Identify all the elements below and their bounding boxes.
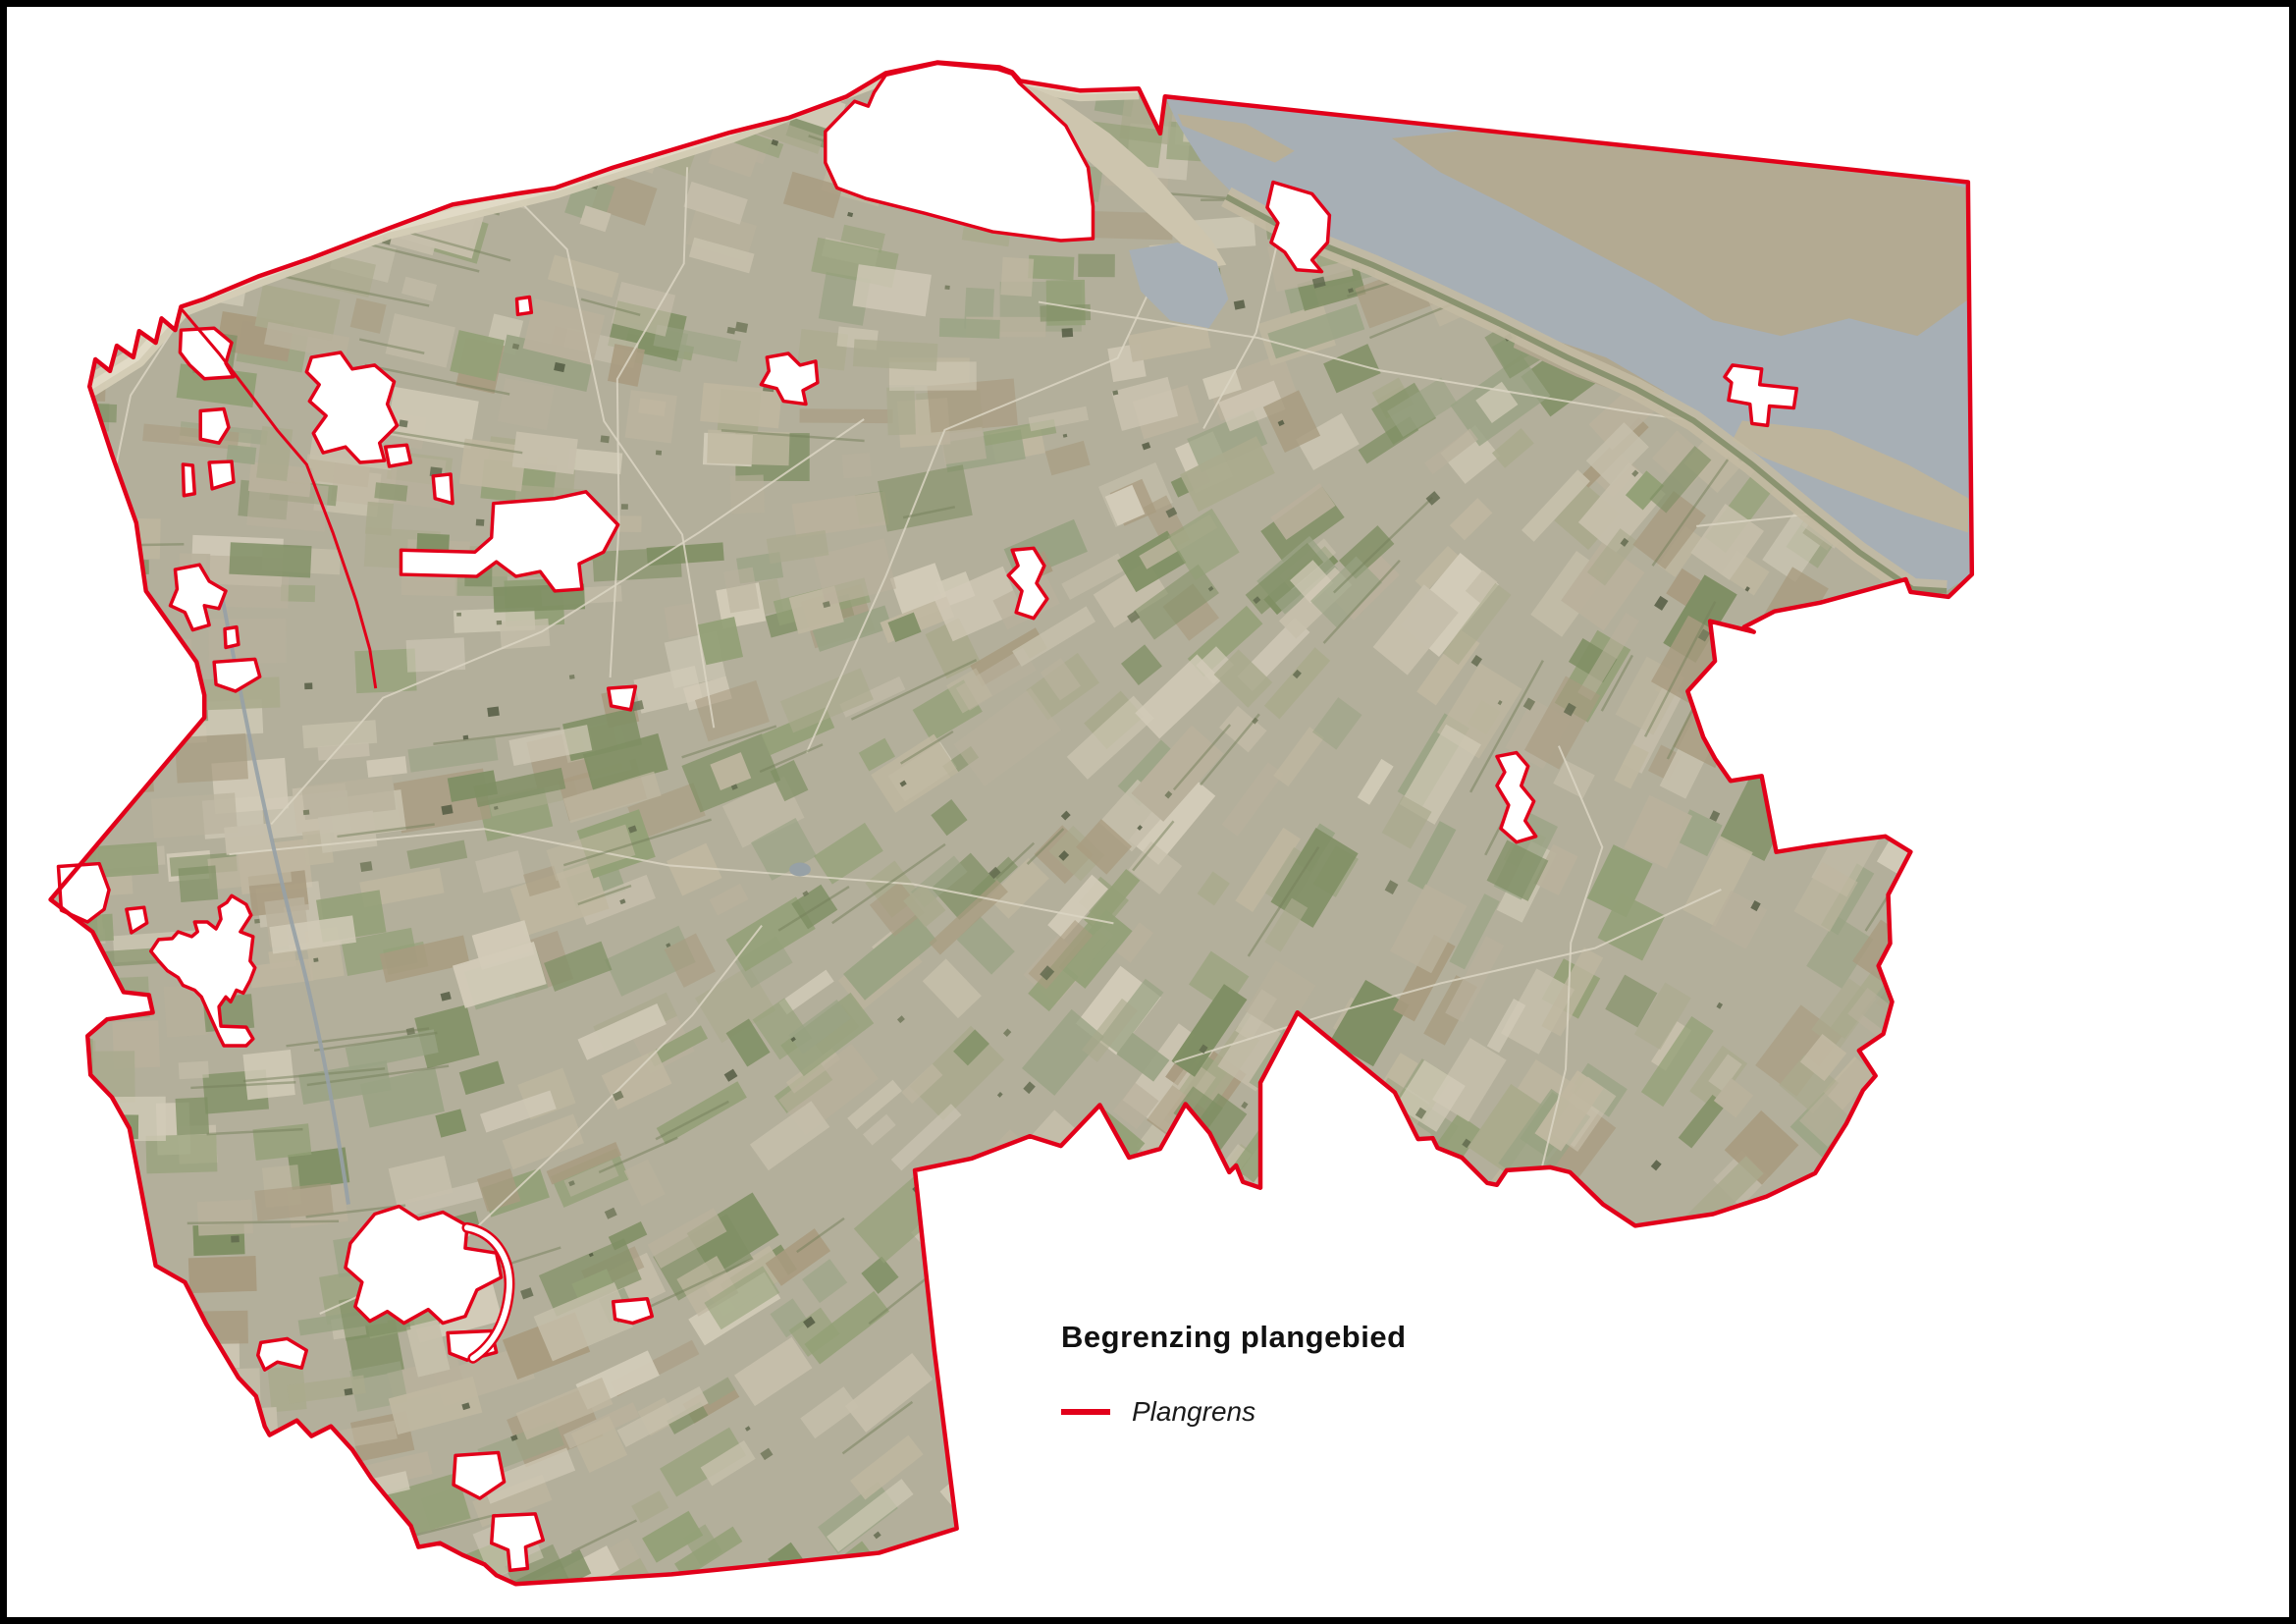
legend-item: Plangrens <box>1061 1396 1407 1428</box>
legend: Begrenzing plangebied Plangrens <box>1061 1320 1407 1428</box>
legend-item-label: Plangrens <box>1132 1396 1255 1428</box>
plan-map-page: Begrenzing plangebied Plangrens <box>0 0 2296 1624</box>
plangrens-line-symbol <box>1061 1409 1110 1415</box>
legend-title: Begrenzing plangebied <box>1061 1320 1407 1355</box>
